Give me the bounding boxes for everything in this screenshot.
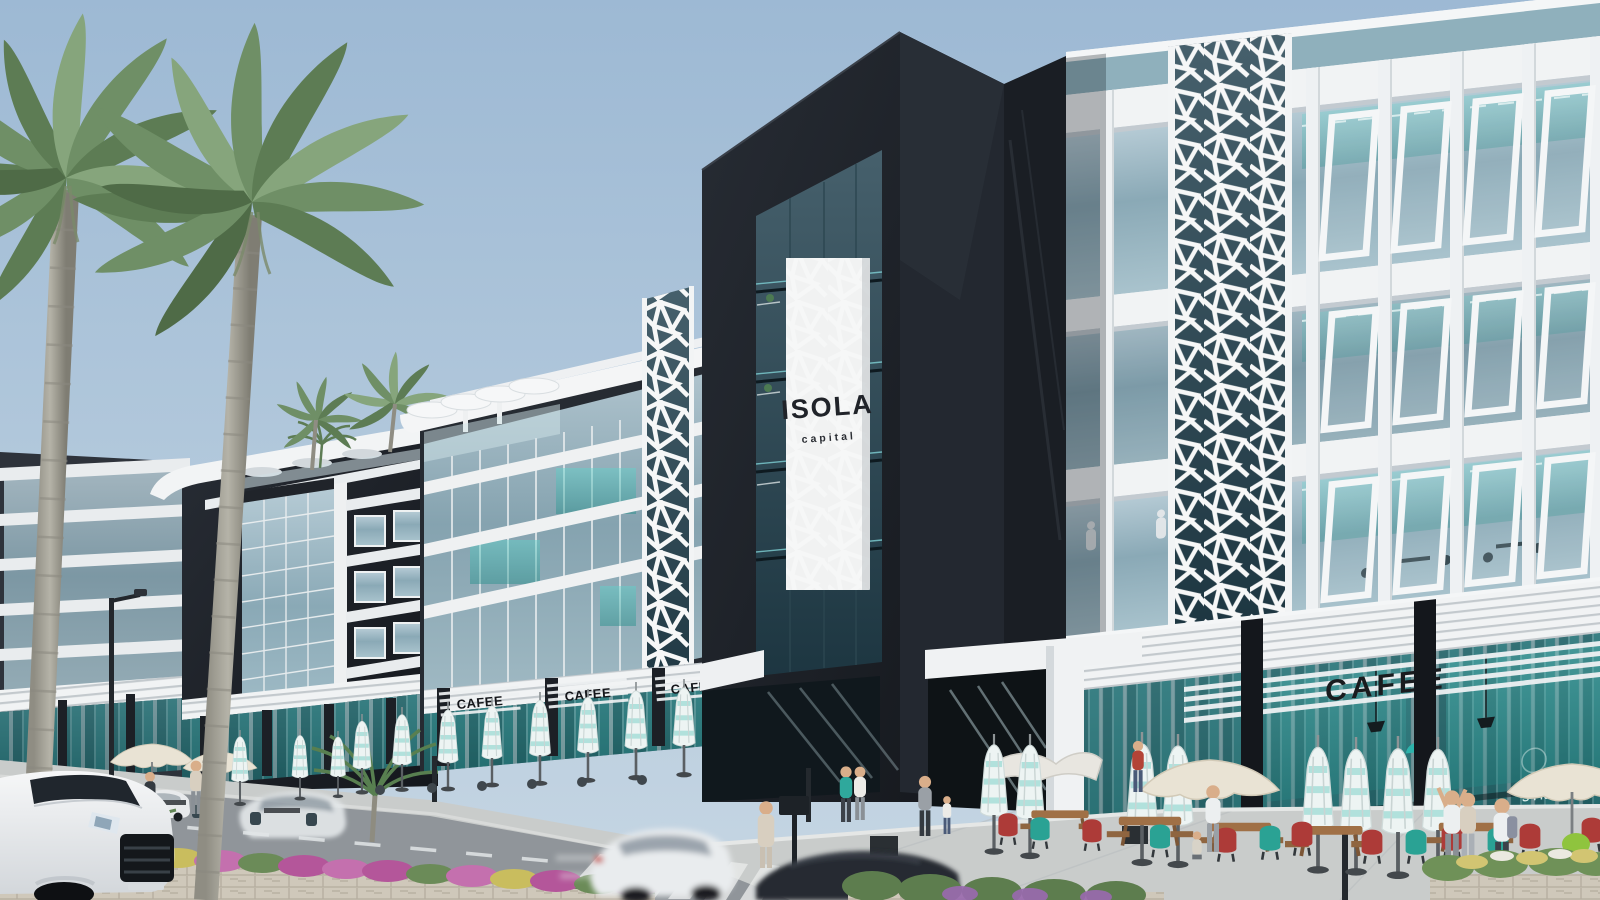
planter-flowers-right: [1422, 848, 1600, 900]
car-suv-white: [0, 771, 174, 900]
scene: CAFEE CAFEE CAFEE ISOLA capital: [0, 0, 1600, 900]
rendering-canvas: CAFEE CAFEE CAFEE ISOLA capital: [0, 0, 1600, 900]
lattice-column-right: [1168, 33, 1292, 637]
person-seated: [1192, 831, 1202, 859]
lattice-column-mid: [642, 286, 694, 712]
